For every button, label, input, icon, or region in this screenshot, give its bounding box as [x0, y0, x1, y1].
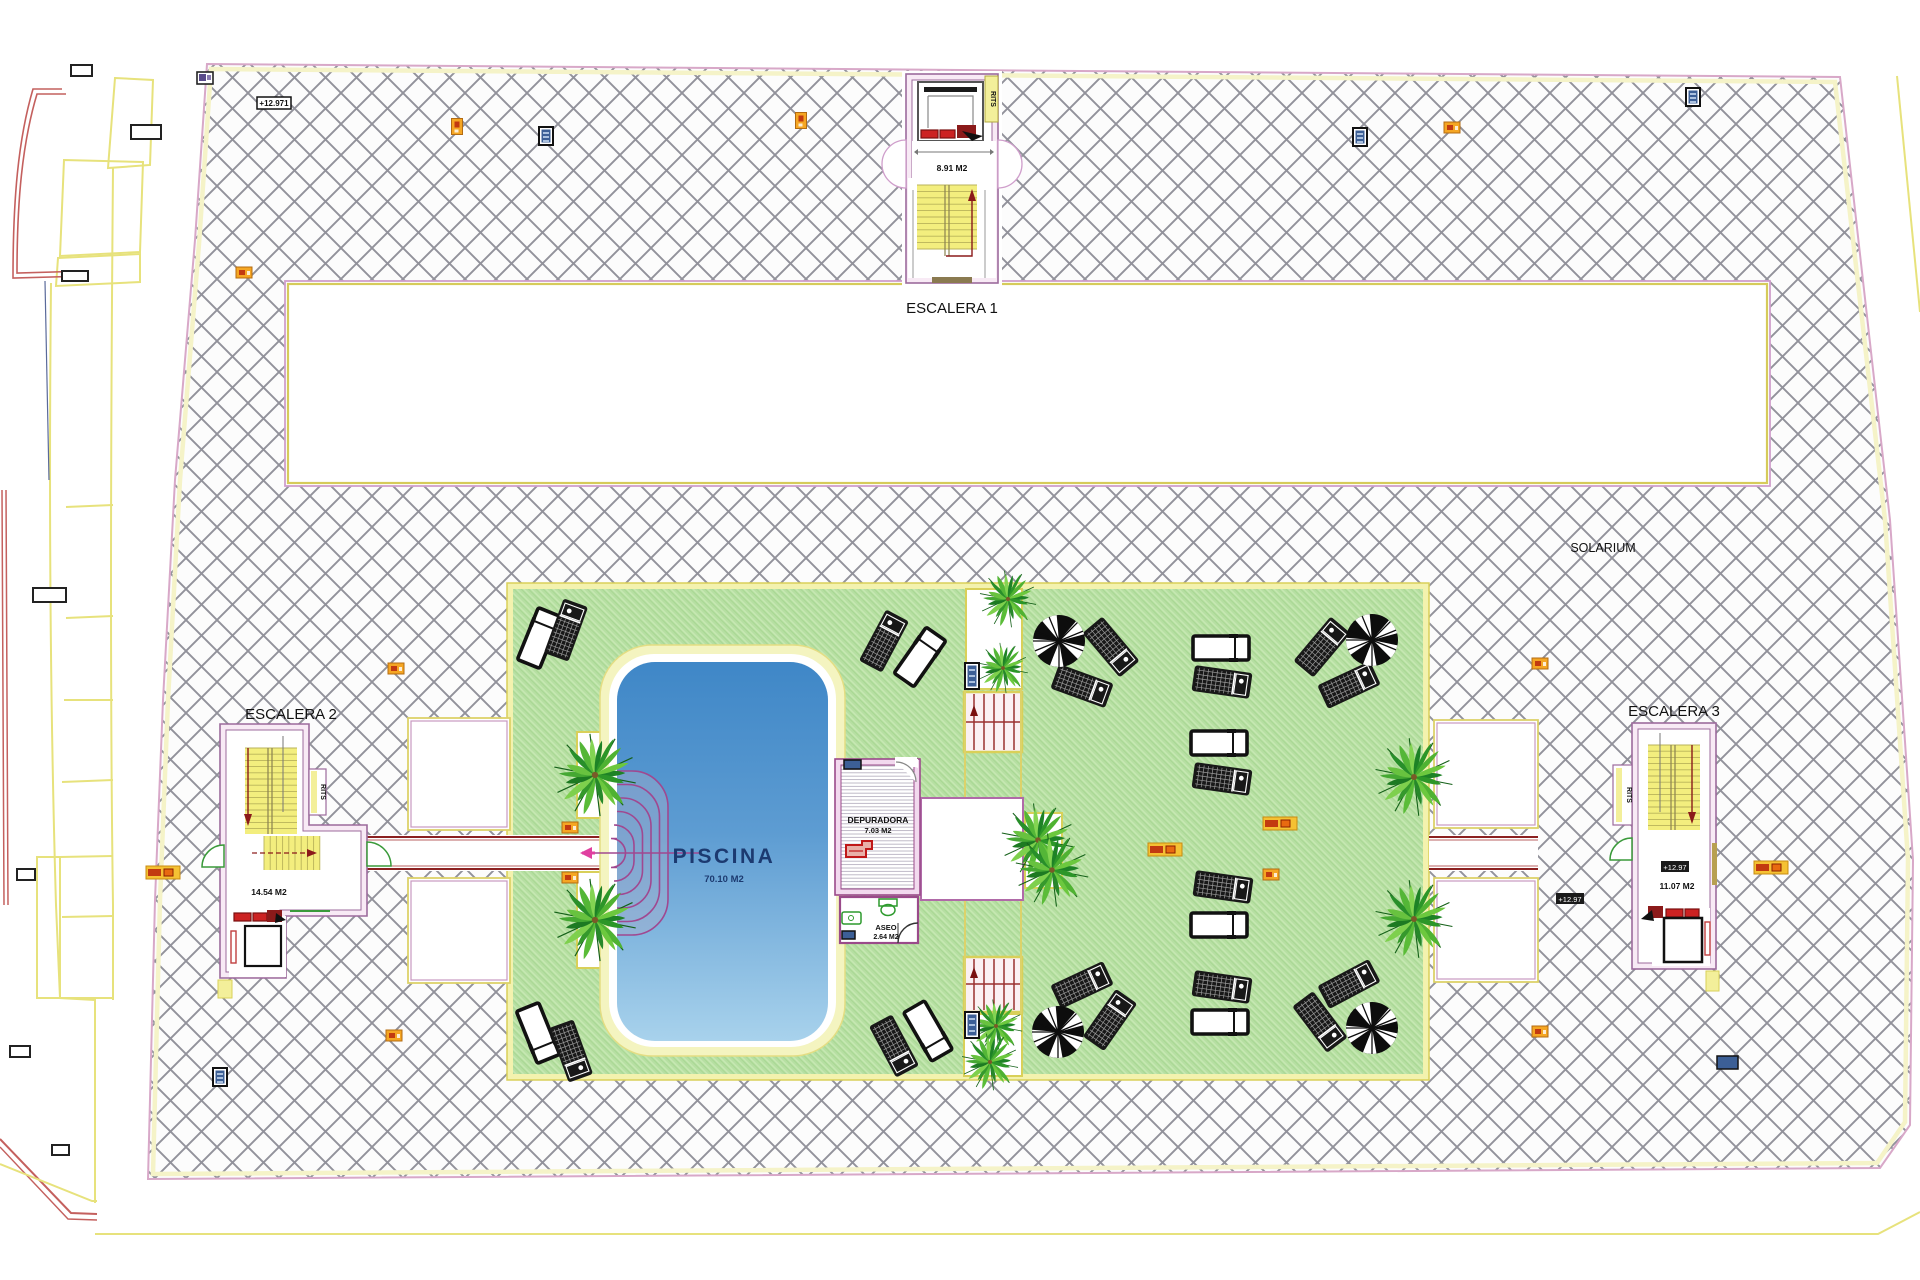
svg-text:70.10 M2: 70.10 M2 [704, 874, 744, 885]
svg-text:+12.97: +12.97 [1663, 863, 1686, 872]
svg-text:ESCALERA 2: ESCALERA 2 [245, 706, 337, 723]
svg-text:RITS: RITS [989, 91, 996, 107]
svg-text:ESCALERA 1: ESCALERA 1 [906, 300, 998, 317]
svg-text:DEPURADORA: DEPURADORA [848, 815, 909, 825]
svg-text:7.03 M2: 7.03 M2 [864, 826, 891, 835]
svg-text:RITS: RITS [1625, 787, 1632, 803]
svg-text:2.64 M2: 2.64 M2 [873, 934, 898, 941]
svg-text:PISCINA: PISCINA [673, 845, 776, 868]
svg-text:11.07 M2: 11.07 M2 [1660, 881, 1695, 891]
svg-text:RITS: RITS [319, 784, 326, 800]
svg-text:8.91 M2: 8.91 M2 [937, 163, 968, 173]
svg-text:ASEO: ASEO [875, 923, 896, 932]
svg-text:+12.97: +12.97 [1558, 895, 1581, 904]
svg-text:ESCALERA 3: ESCALERA 3 [1628, 703, 1720, 720]
svg-text:14.54 M2: 14.54 M2 [251, 887, 287, 897]
svg-text:SOLARIUM: SOLARIUM [1570, 541, 1635, 555]
svg-text:+12.971: +12.971 [259, 99, 289, 108]
